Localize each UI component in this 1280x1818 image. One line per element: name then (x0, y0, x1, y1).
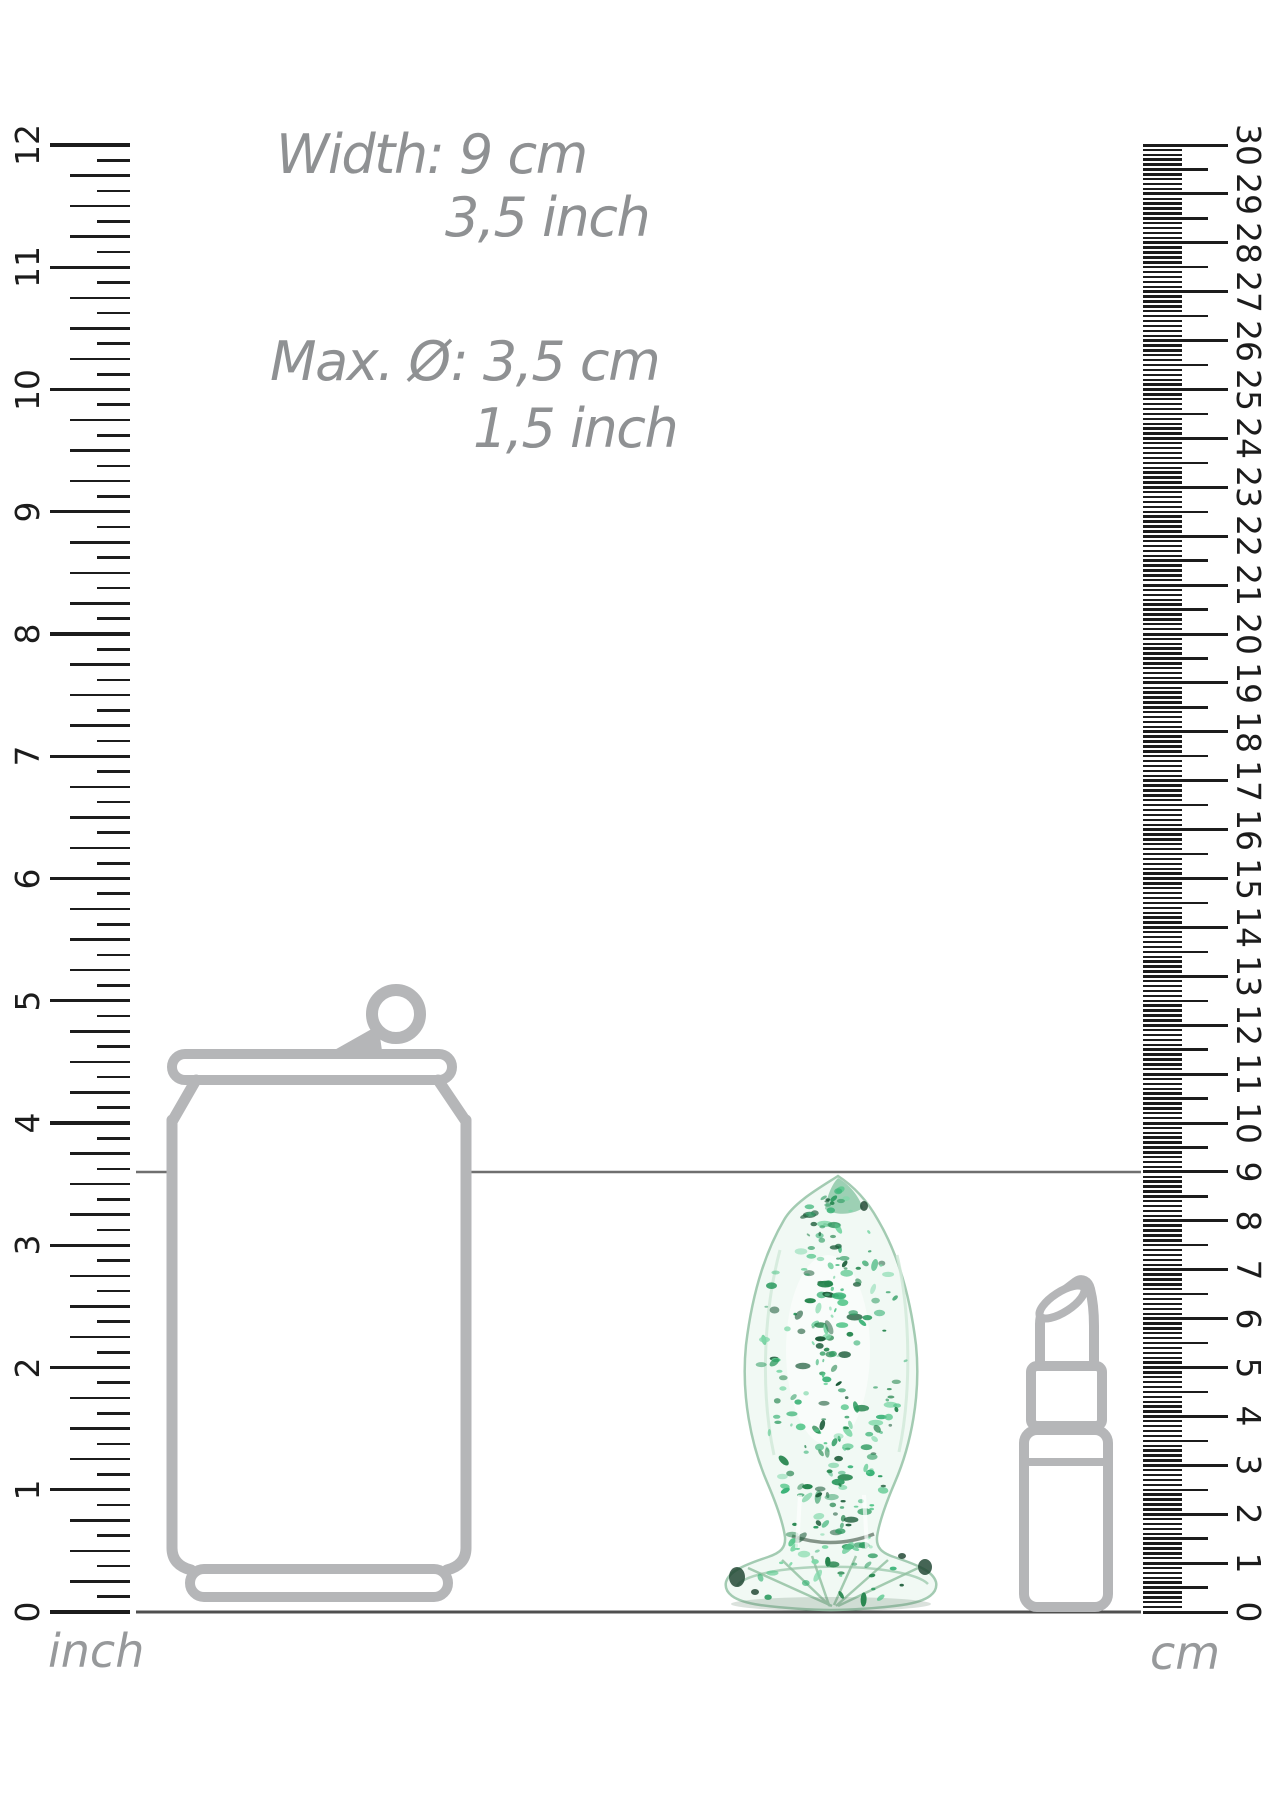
speckle (795, 1248, 808, 1254)
speckle (837, 1199, 845, 1203)
speckle (794, 1399, 801, 1404)
speckle (852, 1563, 858, 1566)
speckle (779, 1386, 786, 1390)
speckle (776, 1370, 782, 1373)
speckle (827, 1469, 833, 1473)
lipstick-case (1024, 1430, 1108, 1607)
speckle (805, 1204, 815, 1209)
speckle (815, 1487, 826, 1492)
speckle (803, 1391, 809, 1395)
speckle (867, 1454, 878, 1460)
speckle (832, 1292, 846, 1299)
speckle (811, 1222, 818, 1226)
speckle (848, 1210, 853, 1212)
speckle (804, 1451, 809, 1454)
speckle (834, 1188, 842, 1194)
speckle (837, 1571, 844, 1574)
speckle (844, 1267, 848, 1269)
speckle (886, 1291, 891, 1293)
speckle (766, 1570, 778, 1575)
speckle (830, 1503, 837, 1508)
product-image (726, 1176, 937, 1611)
speckle (818, 1401, 829, 1406)
can-bottom-rim (190, 1569, 448, 1597)
speckle (786, 1471, 794, 1477)
speckle (854, 1506, 859, 1508)
product-size-diagram: Width: 9 cm 3,5 inch Max. Ø: 3,5 cm 1,5 … (0, 0, 1280, 1818)
speckle (871, 1298, 880, 1304)
speckle (830, 1235, 836, 1238)
speckle (759, 1337, 770, 1343)
speckle (822, 1377, 831, 1383)
speckle (779, 1562, 783, 1565)
speckle (889, 1424, 893, 1427)
speckle (784, 1326, 791, 1331)
speckle (878, 1475, 883, 1477)
speckle (805, 1298, 816, 1303)
speckle (824, 1383, 828, 1385)
speckle (777, 1474, 788, 1480)
speckle (814, 1429, 819, 1432)
speckle (812, 1326, 815, 1328)
speckle (811, 1559, 818, 1564)
speckle (820, 1351, 826, 1355)
speckle (805, 1273, 810, 1275)
speckle (845, 1416, 850, 1419)
speckle (764, 1595, 771, 1600)
speckle (756, 1362, 767, 1367)
speckle (819, 1225, 825, 1228)
speckle (841, 1500, 846, 1502)
speckle (774, 1421, 781, 1424)
speckle (882, 1330, 886, 1332)
speckle (838, 1351, 851, 1358)
speckle (806, 1254, 816, 1259)
speckle (833, 1512, 838, 1515)
speckle (866, 1471, 870, 1474)
speckle (816, 1343, 824, 1349)
speckle (893, 1403, 901, 1407)
speckle (837, 1355, 840, 1357)
speckle (786, 1411, 797, 1416)
speckle (806, 1212, 816, 1217)
speckle (890, 1567, 897, 1571)
speckle (843, 1427, 849, 1430)
speckle (773, 1415, 780, 1419)
speckle (835, 1528, 845, 1534)
speckle (834, 1456, 843, 1461)
speckle (834, 1433, 844, 1439)
speckle (822, 1545, 829, 1549)
speckle (817, 1257, 825, 1261)
speckle (825, 1557, 830, 1567)
speckle (802, 1580, 810, 1586)
speckle (862, 1261, 866, 1263)
speckle (881, 1485, 886, 1488)
speckle (871, 1588, 875, 1591)
speckle (795, 1363, 810, 1369)
speckle (832, 1479, 845, 1486)
speckle (820, 1533, 824, 1535)
speckle (839, 1256, 849, 1261)
speckle (808, 1246, 815, 1250)
speckle (892, 1380, 901, 1384)
can-top-rim (172, 1054, 452, 1080)
speckle (815, 1444, 824, 1451)
speckle (868, 1553, 878, 1558)
speckle (813, 1526, 818, 1529)
speckle (801, 1268, 808, 1271)
speckle (827, 1207, 835, 1213)
speckle (856, 1267, 861, 1270)
speckle (848, 1310, 858, 1315)
speckle (853, 1340, 860, 1345)
speckle (817, 1281, 833, 1288)
speckle (861, 1444, 873, 1450)
speckle (885, 1414, 893, 1421)
can-pull-tab-ring (372, 990, 420, 1038)
illustration-layer (0, 0, 1280, 1818)
speckle (835, 1264, 839, 1266)
speckle (829, 1222, 841, 1228)
speckle (829, 1351, 837, 1357)
speckle (766, 1282, 777, 1289)
speckle (771, 1271, 779, 1275)
speckle (828, 1463, 839, 1468)
speckle (845, 1396, 849, 1399)
speckle (774, 1398, 781, 1403)
speckle (837, 1299, 848, 1306)
speckle (836, 1322, 848, 1328)
lipstick-outline (1024, 1279, 1108, 1607)
speckle (845, 1524, 851, 1527)
speckle (869, 1508, 874, 1511)
speckle (779, 1375, 788, 1380)
speckle (841, 1404, 849, 1410)
speckle (796, 1424, 806, 1431)
speckle (844, 1517, 859, 1523)
speckle (840, 1506, 844, 1509)
lipstick-collar (1031, 1366, 1102, 1426)
speckle (869, 1504, 874, 1506)
speckle (847, 1332, 854, 1337)
speckle (887, 1388, 892, 1390)
speckle (798, 1551, 810, 1558)
speckle (770, 1307, 780, 1314)
speckle (826, 1198, 831, 1201)
speckle (900, 1584, 904, 1587)
speckle (764, 1306, 768, 1308)
speckle (840, 1270, 853, 1277)
speckle (874, 1310, 885, 1316)
speckle (802, 1484, 813, 1489)
speckle (819, 1238, 826, 1243)
speckle (882, 1272, 894, 1277)
soda-can-outline (172, 990, 466, 1597)
speckle (838, 1388, 846, 1392)
speckle (845, 1448, 851, 1451)
speckle (862, 1315, 872, 1320)
speckle (797, 1329, 805, 1335)
speckle (825, 1293, 830, 1296)
speckle (815, 1336, 826, 1341)
speckle (865, 1432, 873, 1437)
speckle (835, 1244, 842, 1249)
speckle (848, 1465, 854, 1468)
speckle (887, 1396, 894, 1399)
speckle (830, 1201, 835, 1205)
